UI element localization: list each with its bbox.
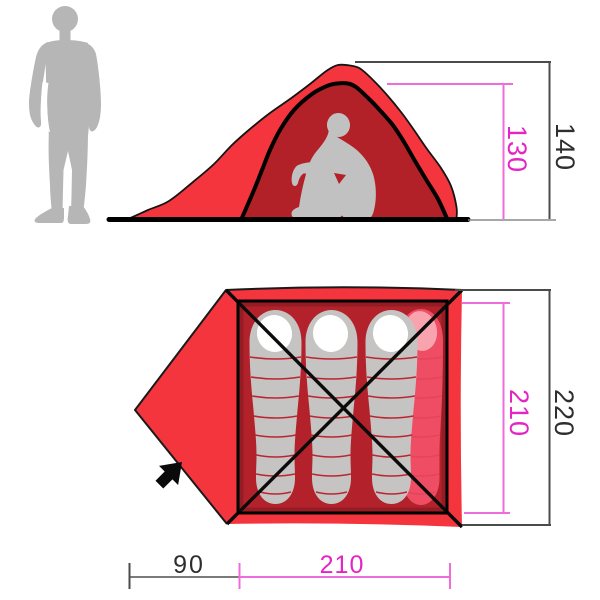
svg-text:130: 130 <box>502 125 532 173</box>
svg-text:210: 210 <box>320 551 365 579</box>
svg-text:210: 210 <box>504 389 534 437</box>
svg-text:220: 220 <box>549 389 579 437</box>
svg-text:90: 90 <box>173 551 205 579</box>
svg-text:140: 140 <box>550 123 580 171</box>
